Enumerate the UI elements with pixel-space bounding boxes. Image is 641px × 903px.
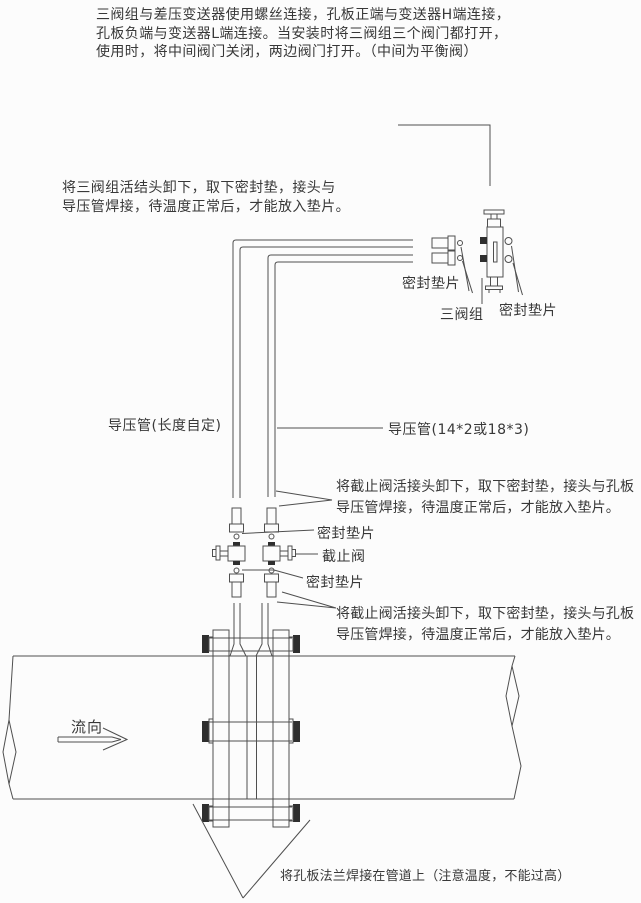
stop-valves-drawing bbox=[213, 508, 296, 656]
flow-direction-label: 流向 bbox=[71, 716, 103, 737]
orifice-flowmeter-installation-diagram: 三阀组与差压变送器使用螺丝连接，孔板正端与变送器H端连接， 孔板负端与变送器L端… bbox=[0, 0, 641, 903]
orifice-flange-drawing bbox=[202, 630, 300, 827]
manifold-weld-note: 将三阀组活结头卸下，取下密封垫，接头与 导压管焊接，待温度正常后，才能放入垫片。 bbox=[62, 179, 350, 216]
three-valve-manifold-label: 三阀组 bbox=[440, 304, 484, 324]
stop-valve-weld-note-upper: 将截止阀活接头卸下，取下密封垫，接头与孔板 导压管焊接，待温度正常后，才能放入垫… bbox=[336, 477, 634, 518]
seal-gasket-label-valve-upper: 密封垫片 bbox=[317, 523, 375, 543]
manifold-weld-note-line-2: 导压管焊接，待温度正常后，才能放入垫片。 bbox=[62, 198, 350, 217]
stop-valve-weld-note-lower-line-2: 导压管焊接，待温度正常后，才能放入垫片。 bbox=[336, 625, 634, 646]
stop-valve-weld-note-upper-line-1: 将截止阀活接头卸下，取下密封垫，接头与孔板 bbox=[336, 477, 634, 498]
stop-valve-weld-note-lower: 将截止阀活接头卸下，取下密封垫，接头与孔板 导压管焊接，待温度正常后，才能放入垫… bbox=[336, 604, 634, 645]
three-valve-manifold-drawing bbox=[480, 210, 512, 293]
top-note-line-1: 三阀组与差压变送器使用螺丝连接，孔板正端与变送器H端连接， bbox=[96, 6, 510, 25]
top-note: 三阀组与差压变送器使用螺丝连接，孔板正端与变送器H端连接， 孔板负端与变送器L端… bbox=[96, 6, 510, 62]
seal-gasket-label-manifold-right: 密封垫片 bbox=[499, 300, 557, 320]
transmitter-connection-line bbox=[398, 125, 490, 186]
impulse-pipe-spec-label: 导压管(14*2或18*3) bbox=[388, 419, 529, 439]
diagram-canvas bbox=[0, 0, 641, 903]
seal-gasket-label-manifold-left: 密封垫片 bbox=[402, 273, 460, 293]
impulse-pipes-drawing bbox=[233, 240, 413, 498]
seal-gasket-label-valve-lower: 密封垫片 bbox=[306, 572, 364, 592]
stop-valve-weld-note-lower-line-1: 将截止阀活接头卸下，取下密封垫，接头与孔板 bbox=[336, 604, 634, 625]
stop-valve-label: 截止阀 bbox=[322, 546, 366, 566]
impulse-pipe-length-label: 导压管(长度自定) bbox=[108, 415, 221, 435]
union-fittings-top bbox=[432, 236, 463, 265]
manifold-weld-note-line-1: 将三阀组活结头卸下，取下密封垫，接头与 bbox=[62, 179, 350, 198]
top-note-line-3: 使用时，将中间阀门关闭，两边阀门打开。（中间为平衡阀） bbox=[96, 43, 510, 62]
top-note-line-2: 孔板负端与变送器L端连接。当安装时将三阀组三个阀门都打开， bbox=[96, 25, 510, 44]
flange-weld-note: 将孔板法兰焊接在管道上（注意温度，不能过高） bbox=[280, 865, 570, 884]
stop-valve-weld-note-upper-line-2: 导压管焊接，待温度正常后，才能放入垫片。 bbox=[336, 498, 634, 519]
